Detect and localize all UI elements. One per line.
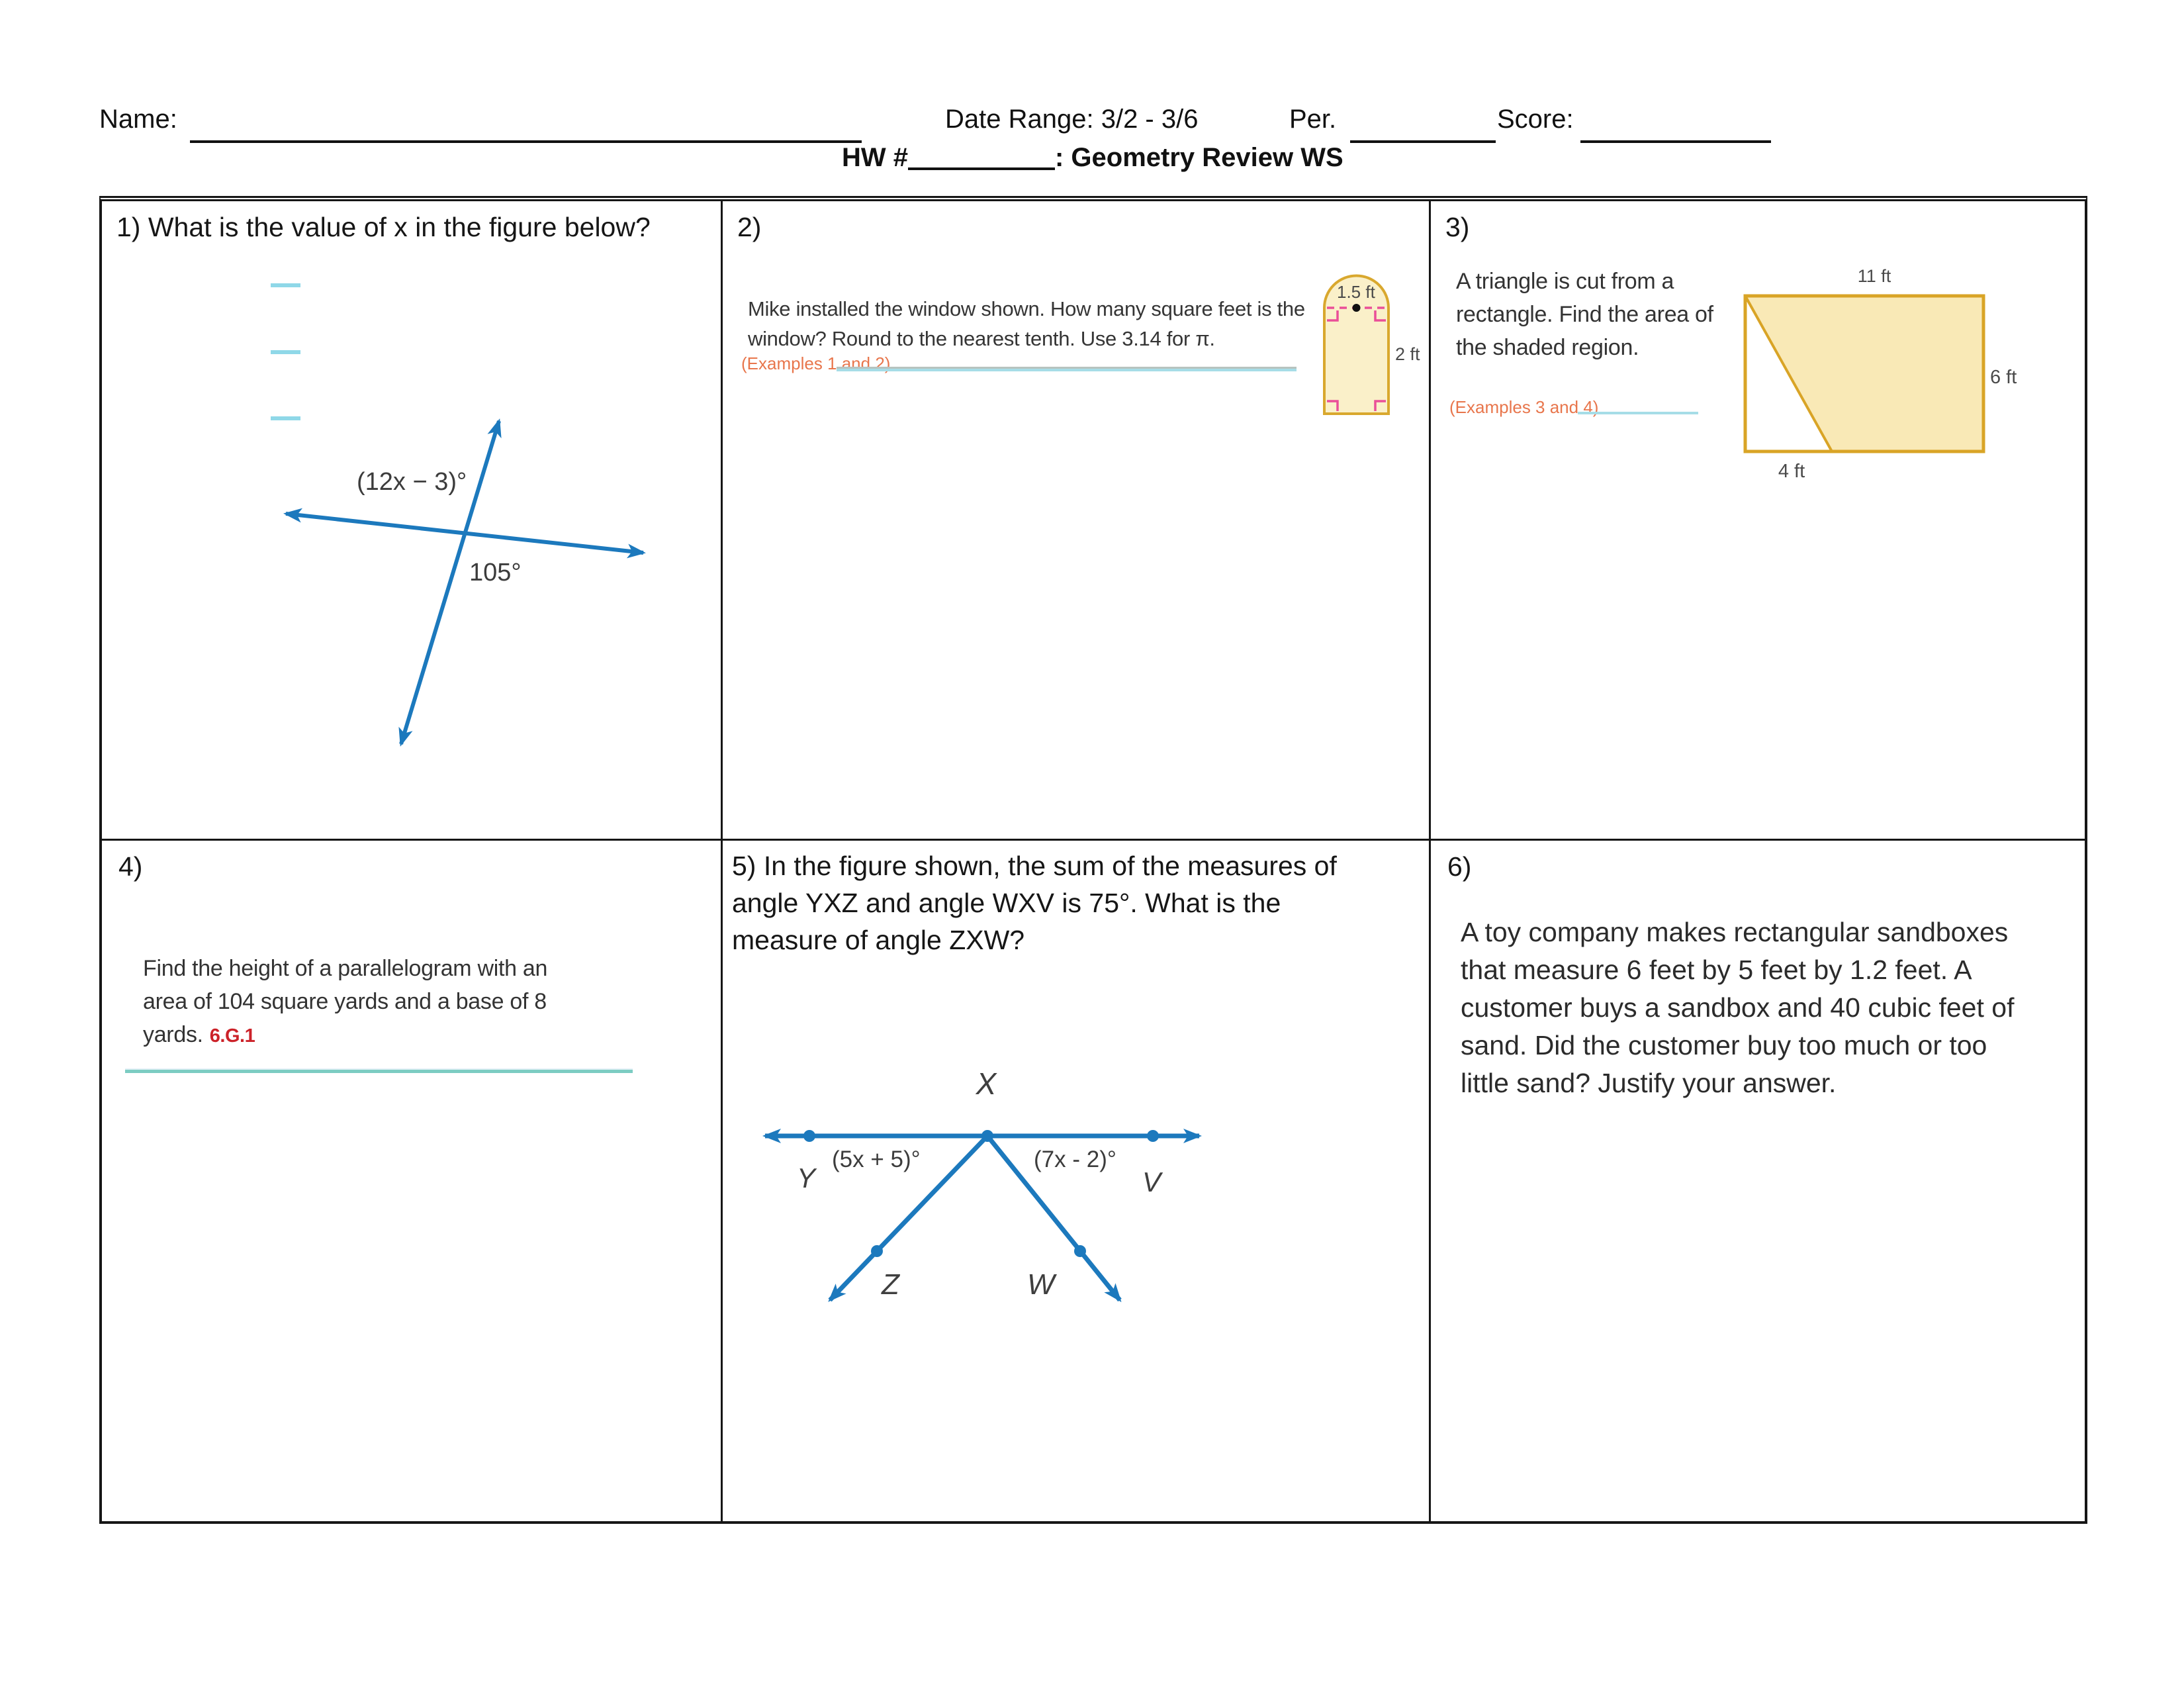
window-center-dot [1353, 304, 1361, 312]
problem-2-cell: 2) Mike installed the window shown. How … [723, 201, 1429, 839]
window-width-label: 1.5 ft [1337, 282, 1396, 303]
problem-4-number: 4) [118, 851, 142, 882]
intersecting-lines-figure [102, 201, 721, 839]
problem-4-paragraph: Find the height of a parallelogram with … [143, 952, 567, 1053]
period-label: Per. [1289, 105, 1336, 134]
problem-3-number: 3) [1445, 212, 1469, 243]
rectangle-triangle-figure [1732, 281, 1997, 466]
period-blank-line [1350, 140, 1496, 143]
problem-1-cell: 1) What is the value of x in the figure … [102, 201, 721, 839]
score-label: Score: [1497, 105, 1574, 134]
problem-4-cell: 4) Find the height of a parallelogram wi… [102, 841, 721, 1526]
score-blank-line [1580, 140, 1771, 143]
angle-yxz-expression: (5x + 5)° [832, 1147, 921, 1173]
angle-expression-label: (12x − 3)° [357, 468, 467, 496]
problem-2-number: 2) [737, 212, 761, 243]
window-height-label: 2 ft [1395, 344, 1420, 365]
angle-value-label: 105° [469, 559, 522, 587]
name-label: Name: [99, 105, 177, 134]
problem-4-answer-line [125, 1068, 633, 1073]
hw-number-blank-line [908, 167, 1055, 170]
point-dot-y [803, 1130, 815, 1142]
problem-3-answer-line [1578, 412, 1698, 414]
name-blank-line [190, 140, 862, 143]
problem-5-heading: 5) In the figure shown, the sum of the m… [732, 847, 1390, 959]
rectangle-right-label: 6 ft [1990, 367, 2017, 389]
problem-6-cell: 6) A toy company makes rectangular sandb… [1431, 841, 2087, 1526]
point-label-z: Z [882, 1268, 899, 1301]
point-dot-z [871, 1245, 883, 1257]
hw-number-prefix: HW # [842, 143, 908, 173]
point-dot-w [1074, 1245, 1086, 1257]
problem-5-cell: 5) In the figure shown, the sum of the m… [723, 841, 1429, 1526]
problem-2-answer-line [837, 367, 1297, 371]
problem-3-cell: 3) A triangle is cut from a rectangle. F… [1431, 201, 2087, 839]
point-label-y: Y [797, 1162, 815, 1194]
date-range-label: Date Range: 3/2 - 3/6 [945, 105, 1198, 134]
window-figure [1308, 251, 1424, 423]
worksheet-page: Name: Date Range: 3/2 - 3/6 Per. Score: … [0, 0, 2184, 1688]
problem-2-text: Mike installed the window shown. How man… [748, 294, 1330, 353]
angle-wxv-expression: (7x - 2)° [1034, 1147, 1116, 1173]
triangle-base-label: 4 ft [1765, 461, 1818, 483]
point-label-w: W [1027, 1268, 1055, 1301]
problem-3-examples-ref: (Examples 3 and 4) [1449, 397, 1598, 418]
point-dot-v [1147, 1130, 1159, 1142]
problem-4-text: Find the height of a parallelogram with … [143, 956, 547, 1047]
worksheet-title-row: HW # : Geometry Review WS [842, 143, 1343, 173]
problem-4-standard-tag: 6.G.1 [210, 1025, 255, 1047]
angle-rays-figure [759, 1062, 1222, 1344]
point-dot-x [981, 1130, 993, 1142]
problem-6-number: 6) [1447, 851, 1471, 882]
worksheet-title: : Geometry Review WS [1055, 143, 1343, 173]
rectangle-top-label: 11 ft [1848, 266, 1901, 287]
problem-3-text: A triangle is cut from a rectangle. Find… [1456, 265, 1727, 364]
point-label-v: V [1142, 1166, 1161, 1198]
worksheet-table: 1) What is the value of x in the figure … [99, 196, 2087, 1524]
point-label-x: X [966, 1066, 1006, 1102]
problem-6-text: A toy company makes rectangular sandboxe… [1461, 914, 2020, 1102]
